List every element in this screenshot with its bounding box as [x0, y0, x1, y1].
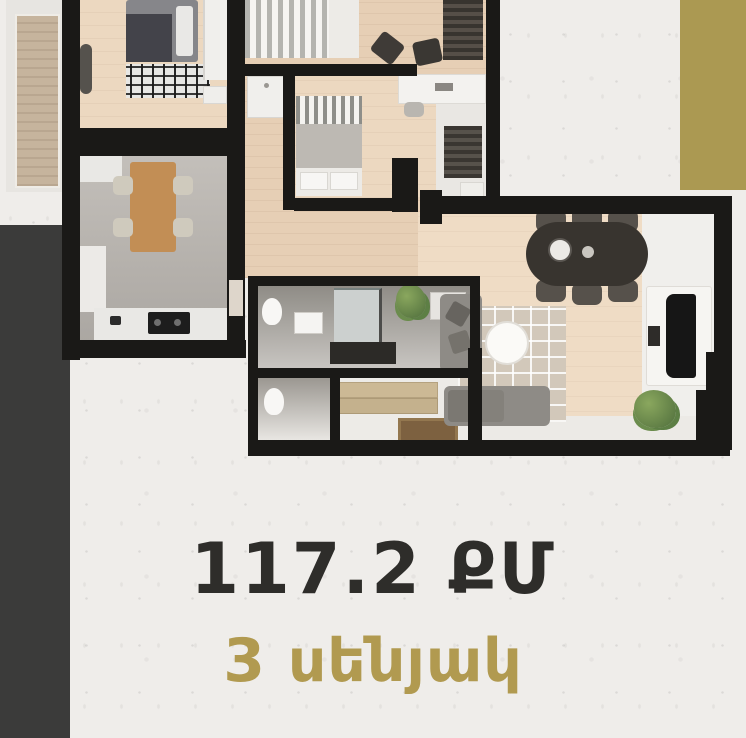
bedroom1-curtain	[80, 44, 92, 94]
bathroom-sink	[294, 312, 323, 334]
bedroom3-blanket	[296, 124, 362, 168]
bedroom3-bed	[296, 96, 362, 196]
bedroom3-desk	[398, 74, 486, 104]
kitchen-door-gap	[229, 280, 243, 316]
kitchen-sink	[110, 316, 121, 325]
tv-speaker	[648, 326, 660, 346]
bedroom3-pillow	[330, 172, 358, 190]
bedroom3-desk-chair	[404, 102, 424, 117]
wall-right-outer-living	[714, 196, 732, 366]
wall-right-outer-top	[486, 0, 500, 212]
bedroom1-side-table	[203, 86, 227, 104]
bathroom-toilet	[262, 298, 282, 325]
wc-toilet	[264, 388, 284, 415]
table-vase	[582, 246, 594, 258]
dining-chair	[572, 283, 602, 305]
wall-bathroom-left	[248, 276, 258, 448]
bedroom1-blanket	[126, 14, 172, 62]
wall-bedroom3-bottom	[294, 198, 398, 211]
cooktop-burner	[174, 319, 181, 326]
kitchen-chair	[113, 176, 133, 195]
bedroom2-bed	[245, 0, 359, 58]
floor-plan	[0, 0, 746, 470]
coffee-table	[487, 323, 527, 363]
wall-wc-right	[330, 368, 340, 448]
bathroom-shower	[334, 288, 382, 342]
maze-pattern-rug	[126, 64, 210, 98]
bedroom1-wardrobe	[203, 0, 229, 80]
entry-bench-shelf	[336, 398, 438, 414]
wall-bathroom-top	[248, 276, 480, 286]
real-estate-post: 117.2 ՔՄ 3 սենյակ	[0, 0, 746, 738]
dining-table	[526, 222, 648, 286]
cooktop-burner	[154, 319, 161, 326]
wall-bedroom3-left	[283, 64, 295, 210]
kitchen-chair	[173, 176, 193, 195]
entry-bench-shelf	[336, 382, 438, 398]
wall-bottom	[248, 440, 730, 456]
wall-bathroom-right	[470, 276, 480, 360]
cabinet-knob	[264, 83, 269, 88]
rooms-label: 3 սենյակ	[0, 626, 746, 696]
kitchen-cooktop	[148, 312, 190, 334]
kitchen-chair	[173, 218, 193, 237]
kitchen-chair	[113, 218, 133, 237]
hallway-cabinet	[247, 76, 287, 118]
bedroom2-wardrobe	[443, 0, 483, 60]
bedroom1-pillow	[176, 6, 193, 56]
wall-bedroom2-bottom	[245, 64, 417, 76]
desk-item	[435, 83, 453, 91]
tv-screen	[666, 294, 696, 378]
wall-living-top	[442, 196, 730, 214]
wall-right-step	[706, 352, 732, 394]
kitchen-counter-left	[80, 246, 106, 312]
bathroom-vanity	[330, 342, 396, 364]
wall-entry-living	[468, 348, 482, 448]
bedroom1-bed	[126, 0, 198, 62]
bedroom3-bed-throw	[296, 96, 362, 126]
wall-bathroom-bottom	[248, 368, 480, 378]
balcony-lounge	[15, 14, 60, 188]
wall-kitchen-bottom	[62, 340, 246, 358]
wall-hall-pillar	[420, 190, 442, 224]
bedroom3-wardrobe	[444, 126, 482, 178]
bedroom3-pillow	[300, 172, 328, 190]
sofa-pillow	[444, 300, 471, 327]
kitchen-dining-table	[130, 162, 176, 252]
sofa-seat-section	[444, 386, 550, 426]
plant	[634, 390, 676, 428]
plant	[396, 284, 426, 318]
table-plate	[548, 238, 572, 262]
wall-bedroom1-kitchen	[62, 128, 228, 156]
bedroom2-bed-sheet	[329, 0, 359, 58]
wall-left-outer	[62, 0, 80, 360]
area-label: 117.2 ՔՄ	[0, 528, 746, 610]
